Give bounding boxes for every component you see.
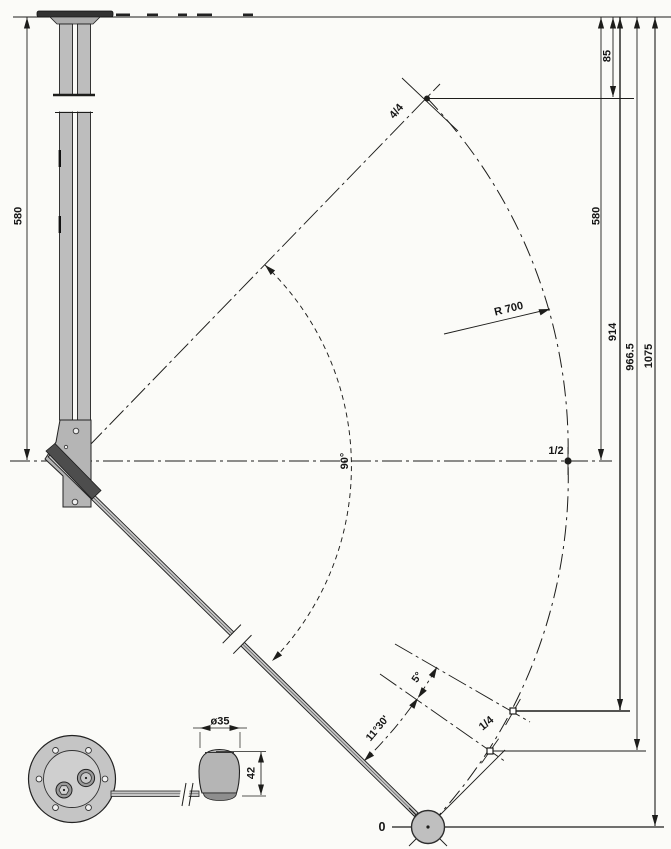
arrowhead [258, 785, 264, 796]
drawing-page: 580 85 4/4 580 914 966.5 1075 R 700 1/2 … [0, 0, 671, 849]
label-dim-1075: 1075 [643, 344, 655, 368]
flange-bolt-hole [86, 748, 92, 754]
arrowhead [364, 751, 374, 761]
radial-line-4-4 [88, 84, 440, 447]
bracket-bolt-hole [72, 499, 78, 505]
knob-side-view [199, 750, 240, 794]
arrowhead [200, 725, 211, 731]
position-markers [402, 78, 572, 763]
arrowhead [634, 18, 640, 29]
arrowhead [258, 752, 264, 763]
label-angle-5: 5° [409, 670, 425, 685]
angle-dimension-arc [364, 667, 437, 761]
label-pos-1-2: 1/2 [548, 445, 563, 457]
label-dim-580-right: 580 [590, 207, 602, 225]
arrowhead [539, 309, 551, 315]
arrowhead [617, 699, 623, 710]
point-1-2 [564, 457, 571, 464]
knob-center-point [426, 825, 429, 828]
labels: 580 85 4/4 580 914 966.5 1075 R 700 1/2 … [12, 50, 655, 834]
arrowhead [598, 18, 604, 29]
point-quarter-upper [510, 708, 516, 714]
bolt-center [85, 777, 87, 779]
mounting-flange-plate [37, 11, 113, 17]
motion-arcs [265, 98, 568, 827]
label-dim-966-5: 966.5 [624, 343, 636, 371]
arrowhead [429, 667, 437, 678]
label-pos-0: 0 [379, 820, 386, 834]
label-dim-85: 85 [601, 50, 613, 62]
centerlines [10, 84, 612, 762]
ceiling-hatch-dash [178, 14, 187, 17]
arrowhead [634, 739, 640, 750]
label-angle-11-30: 11°30' [364, 713, 392, 743]
arrowhead [652, 18, 658, 29]
flange-bolt-hole [102, 776, 108, 782]
post-tube-right-wall [78, 24, 91, 420]
bracket-bolt-hole [64, 445, 67, 448]
arrowhead [24, 18, 30, 29]
bolt-center [63, 789, 65, 791]
technical-drawing: 580 85 4/4 580 914 966.5 1075 R 700 1/2 … [0, 0, 671, 849]
label-pos-1-4: 1/4 [477, 714, 497, 734]
arrowhead [230, 725, 241, 731]
arrowhead [610, 18, 616, 29]
flange-bolt-hole [86, 805, 92, 811]
post-tube-left-wall [60, 24, 73, 420]
ceiling-hatch-dash [147, 14, 158, 17]
arrowhead [272, 651, 282, 661]
point-quarter-lower [487, 748, 493, 754]
flange-bolt-hole [53, 805, 59, 811]
angle-dimensions [364, 667, 437, 761]
label-pos-4-4: 4/4 [387, 101, 407, 121]
ceiling-hatch-dash [197, 14, 212, 17]
post-break-gap [52, 96, 98, 112]
flange-bolt-hole [36, 776, 42, 782]
label-dim-42: 42 [245, 767, 257, 779]
arrowhead [598, 449, 604, 460]
point-4-4 [424, 96, 430, 102]
ceiling-hatch-dash [116, 14, 130, 17]
bracket-bolt-hole [73, 428, 79, 434]
ceiling-hatch-dash [243, 14, 253, 17]
post-weld-tick [59, 150, 61, 167]
extension-lines [392, 99, 664, 828]
arrowhead [24, 449, 30, 460]
flange-bolt-hole [53, 748, 59, 754]
label-angle-90: 90° [339, 453, 351, 470]
cross-mark-4-4 [402, 78, 458, 131]
label-dia-35: ø35 [211, 716, 230, 728]
post-weld-tick [59, 216, 61, 233]
label-dim-914: 914 [607, 322, 619, 341]
dimension-lines [24, 17, 658, 826]
flange-skirt [50, 17, 100, 24]
label-dim-580-left: 580 [12, 207, 24, 225]
detail-view [29, 725, 267, 823]
arrowhead [610, 86, 616, 97]
arrowhead [617, 18, 623, 29]
knob-base-lip [204, 793, 237, 801]
arrowhead [652, 815, 658, 826]
swing-path-arc [427, 98, 568, 827]
arrowhead [418, 687, 427, 698]
